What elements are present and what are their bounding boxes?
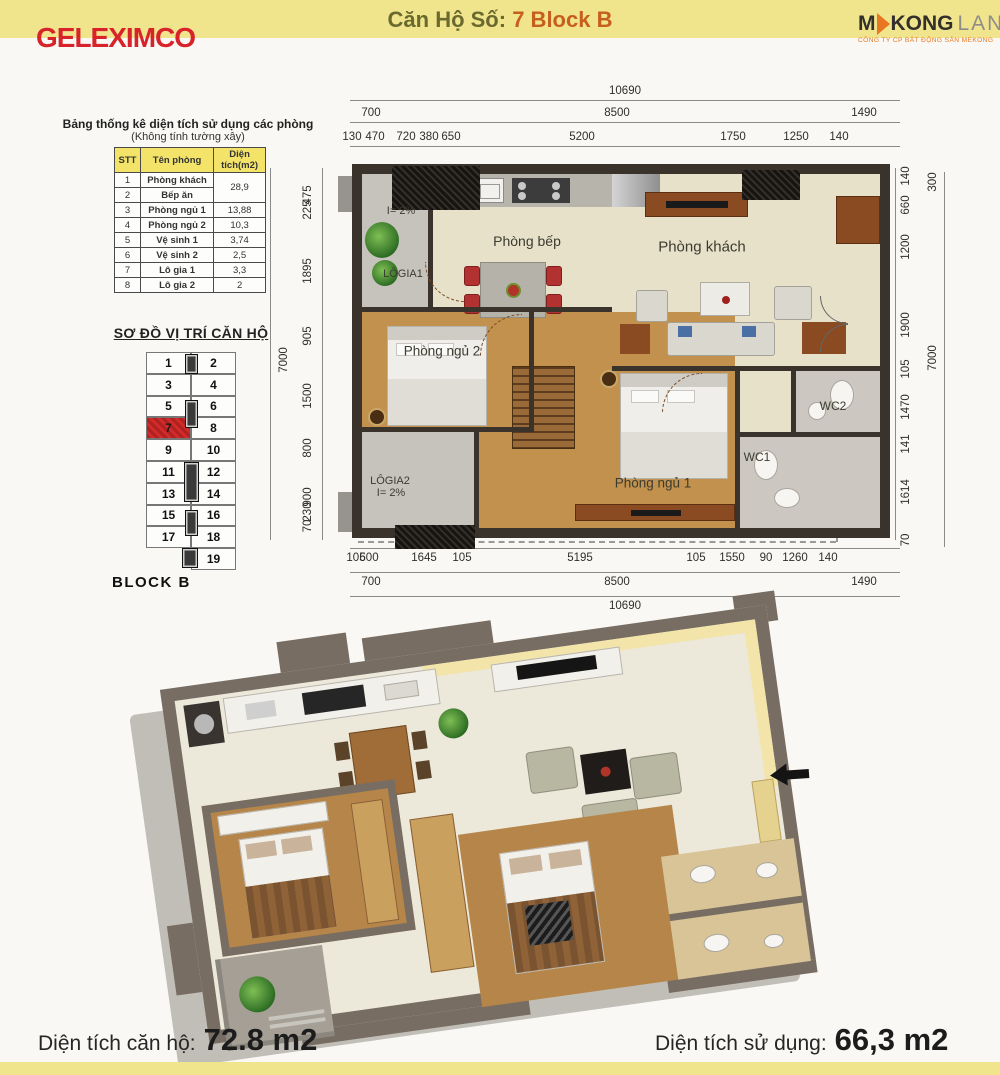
table-row: 8 Lô gia 2 2	[115, 278, 266, 293]
3d-dining-chair	[411, 730, 427, 750]
3d-armchair	[525, 746, 578, 794]
elevator-core-icon	[185, 510, 198, 536]
cell-room: Lô gia 1	[140, 263, 213, 278]
3d-armchair	[629, 752, 682, 800]
dim-label: 8500	[604, 107, 630, 119]
footer-left: Diện tích căn hộ: 72.8 m2	[38, 1022, 317, 1058]
dim-line	[350, 122, 900, 123]
sink-wc1-icon	[774, 488, 800, 508]
cell-stt: 1	[115, 173, 141, 188]
dim-label: 470	[365, 131, 384, 143]
slope-label-logia2: I= 2%	[377, 487, 405, 499]
dim-label: 600	[359, 552, 378, 564]
mekong-logo-kong: KONG	[891, 12, 954, 36]
wall	[612, 366, 880, 371]
dining-chair	[464, 266, 480, 286]
dim-label: 700	[361, 107, 380, 119]
table-row: 5 Vệ sinh 1 3,74	[115, 233, 266, 248]
shaft-block	[392, 166, 480, 210]
dim-line	[350, 572, 900, 573]
mekong-logo-arrow-icon	[877, 13, 890, 35]
wall-stub	[338, 176, 352, 212]
dim-label: 225	[302, 200, 314, 219]
entrance-arrow-icon	[769, 760, 819, 787]
3d-bedroom2	[202, 779, 416, 957]
coffee-table	[700, 282, 750, 316]
dim-label: 1490	[851, 107, 877, 119]
table-row: 6 Vệ sinh 2 2,5	[115, 248, 266, 263]
title-unit: 7 Block B	[512, 7, 612, 32]
unit-cell: 9	[146, 439, 191, 461]
cell-stt: 7	[115, 263, 141, 278]
slope-label-logia1: I= 2%	[387, 205, 415, 217]
cell-stt: 4	[115, 218, 141, 233]
area-table-title: Bảng thống kê diện tích sử dụng các phòn…	[63, 117, 314, 131]
dim-label: 140	[900, 166, 912, 185]
table-row: 7 Lô gia 1 3,3	[115, 263, 266, 278]
plant-icon	[365, 222, 399, 258]
tv-cabinet-bedroom1	[575, 504, 735, 521]
hall-cabinet	[836, 196, 880, 244]
3d-bathrooms	[661, 838, 811, 979]
dim-label: 10690	[609, 600, 641, 612]
3d-dining-chair	[334, 741, 350, 761]
dim-line	[322, 168, 323, 540]
wall	[474, 432, 479, 528]
dim-label: 1895	[302, 258, 314, 284]
3d-shoe-cabinet	[525, 900, 574, 946]
footer-band	[0, 1062, 1000, 1075]
page: Căn Hộ Số: 7 Block B GELEXIMCO M KONG LA…	[0, 0, 1000, 1075]
cell-area: 2	[214, 278, 266, 293]
elevator-core-icon	[185, 400, 198, 428]
3d-dining-chair	[415, 760, 431, 780]
dim-line	[350, 100, 900, 101]
block-label: BLOCK B	[112, 574, 191, 591]
dim-label: 1614	[900, 479, 912, 505]
dim-label: 660	[900, 195, 912, 214]
dim-line	[944, 172, 945, 547]
dim-label: 105	[686, 552, 705, 564]
dim-label: 105	[452, 552, 471, 564]
wall	[529, 312, 534, 427]
geleximco-logo: GELEXIMCO	[36, 22, 195, 54]
dining-chair	[546, 266, 562, 286]
room-label-kitchen: Phòng bếp	[493, 233, 561, 249]
pillow	[742, 326, 756, 337]
cell-room: Bếp ăn	[140, 188, 213, 203]
mekong-logo: M KONG LAND CÔNG TY CP BẤT ĐỘNG SẢN MEKO…	[858, 12, 988, 44]
room-label-wc1: WC1	[744, 450, 771, 464]
dim-label: 1470	[900, 394, 912, 420]
cell-stt: 6	[115, 248, 141, 263]
cell-area-merged: 28,9	[214, 173, 266, 203]
wall	[362, 307, 612, 312]
col-area: Diện tích(m2)	[214, 148, 266, 173]
footer-right-value: 66,3 m2	[835, 1022, 949, 1058]
tv-cabinet	[645, 192, 748, 217]
dim-label: 7000	[927, 345, 939, 371]
entry-door-arc	[820, 296, 848, 324]
dim-label: 140	[818, 552, 837, 564]
dim-label: 1750	[720, 131, 746, 143]
wall	[735, 432, 880, 437]
cell-area: 2,5	[214, 248, 266, 263]
title-prefix: Căn Hộ Số:	[388, 7, 507, 32]
table-header-row: STT Tên phòng Diện tích(m2)	[115, 148, 266, 173]
stove-icon	[512, 178, 570, 203]
room-label-bedroom1: Phòng ngủ 1	[615, 476, 692, 491]
room-label-wc2: WC2	[820, 399, 847, 413]
dim-label: 905	[302, 326, 314, 345]
arrow-tail	[785, 769, 810, 780]
3d-plant	[436, 706, 470, 740]
wardrobe	[512, 366, 575, 449]
cell-area: 3,3	[214, 263, 266, 278]
dim-label: 141	[900, 434, 912, 453]
dim-label: 130	[342, 131, 361, 143]
wall	[735, 371, 740, 528]
stair-core-icon	[182, 548, 198, 568]
cell-area: 13,88	[214, 203, 266, 218]
dim-label: 1550	[719, 552, 745, 564]
col-room: Tên phòng	[140, 148, 213, 173]
pillow	[678, 326, 692, 337]
dim-line	[895, 168, 896, 540]
table-row: 3 Phòng ngủ 1 13,88	[115, 203, 266, 218]
dim-label: 1260	[782, 552, 808, 564]
page-title: Căn Hộ Số: 7 Block B	[388, 7, 613, 33]
dim-label: 800	[302, 438, 314, 457]
unit-cell: 10	[191, 439, 236, 461]
3d-kitchen-cabinets	[223, 668, 441, 734]
dim-label: 5195	[567, 552, 593, 564]
cell-room: Phòng khách	[140, 173, 213, 188]
stair-core-icon	[184, 462, 199, 502]
wall	[362, 427, 534, 432]
dim-label: 650	[441, 131, 460, 143]
table-row: 1 Phòng khách 28,9	[115, 173, 266, 188]
dim-label: 10690	[609, 85, 641, 97]
cell-room: Vệ sinh 2	[140, 248, 213, 263]
col-stt: STT	[115, 148, 141, 173]
cell-room: Lô gia 2	[140, 278, 213, 293]
bed-bedroom2	[387, 326, 487, 426]
side-table	[620, 324, 650, 354]
mekong-logo-subtitle: CÔNG TY CP BẤT ĐỘNG SẢN MEKONG	[858, 37, 988, 44]
cell-area: 10,3	[214, 218, 266, 233]
room-label-bedroom2: Phòng ngủ 2	[404, 344, 481, 359]
dim-label: 7000	[278, 347, 290, 373]
wall-stub	[338, 492, 352, 532]
cell-room: Phòng ngủ 1	[140, 203, 213, 218]
dim-label: 1900	[900, 312, 912, 338]
room-label-logia1: LÔGIA1	[383, 268, 423, 280]
dim-label: 1200	[900, 234, 912, 260]
shaft-block	[742, 170, 800, 200]
apartment-3d-view	[151, 598, 833, 1068]
room-label-living: Phòng khách	[658, 239, 746, 256]
dim-label: 105	[900, 359, 912, 378]
dim-label: 1500	[302, 383, 314, 409]
dim-label: 1645	[411, 552, 437, 564]
nightstand	[368, 408, 386, 426]
location-diagram: 12 34 56 78 910 1112 1314 1516 1718 19	[146, 352, 236, 570]
dim-label: 1490	[851, 576, 877, 588]
dim-line	[350, 146, 900, 147]
area-table: STT Tên phòng Diện tích(m2) 1 Phòng khác…	[114, 147, 266, 293]
cell-room: Phòng ngủ 2	[140, 218, 213, 233]
footer-right-label: Diện tích sử dụng:	[655, 1032, 827, 1056]
mekong-logo-land: LAND	[958, 12, 1000, 36]
dim-label: 720	[396, 131, 415, 143]
footer-right: Diện tích sử dụng: 66,3 m2	[655, 1022, 948, 1058]
dim-label: 700	[361, 576, 380, 588]
unit-cell: 3	[146, 374, 191, 396]
cell-stt: 8	[115, 278, 141, 293]
dim-label: 380	[419, 131, 438, 143]
wall	[791, 371, 796, 432]
cell-room: Vệ sinh 1	[140, 233, 213, 248]
3d-coffee-table	[580, 749, 631, 795]
nightstand	[600, 370, 618, 388]
3d-washing-machine	[183, 701, 224, 748]
elevator-core-icon	[185, 354, 198, 374]
dim-label: 5200	[569, 131, 595, 143]
location-diagram-title: SƠ ĐỒ VỊ TRÍ CĂN HỘ	[114, 325, 269, 341]
table-row: 4 Phòng ngủ 2 10,3	[115, 218, 266, 233]
footer-left-label: Diện tích căn hộ:	[38, 1032, 196, 1056]
armchair	[774, 286, 812, 320]
cell-stt: 5	[115, 233, 141, 248]
room-label-logia2: LÔGIA2	[370, 475, 410, 487]
shaft-block	[395, 525, 475, 549]
dim-line	[350, 596, 900, 597]
mekong-logo-row: M KONG LAND	[858, 12, 988, 36]
cell-stt: 2	[115, 188, 141, 203]
dim-label: 70	[302, 520, 314, 533]
dim-label: 140	[829, 131, 848, 143]
dim-label: 1250	[783, 131, 809, 143]
dim-label: 70	[900, 534, 912, 547]
mekong-logo-m: M	[858, 12, 876, 36]
dim-label: 90	[760, 552, 773, 564]
cell-area: 3,74	[214, 233, 266, 248]
cell-stt: 3	[115, 203, 141, 218]
footer-left-value: 72.8 m2	[204, 1022, 318, 1058]
3d-entry-door	[751, 778, 781, 842]
dim-label: 8500	[604, 576, 630, 588]
dim-label: 300	[927, 172, 939, 191]
dim-line	[270, 168, 271, 540]
unit-cell: 4	[191, 374, 236, 396]
area-table-subtitle: (Không tính tường xây)	[131, 131, 245, 143]
armchair	[636, 290, 668, 322]
